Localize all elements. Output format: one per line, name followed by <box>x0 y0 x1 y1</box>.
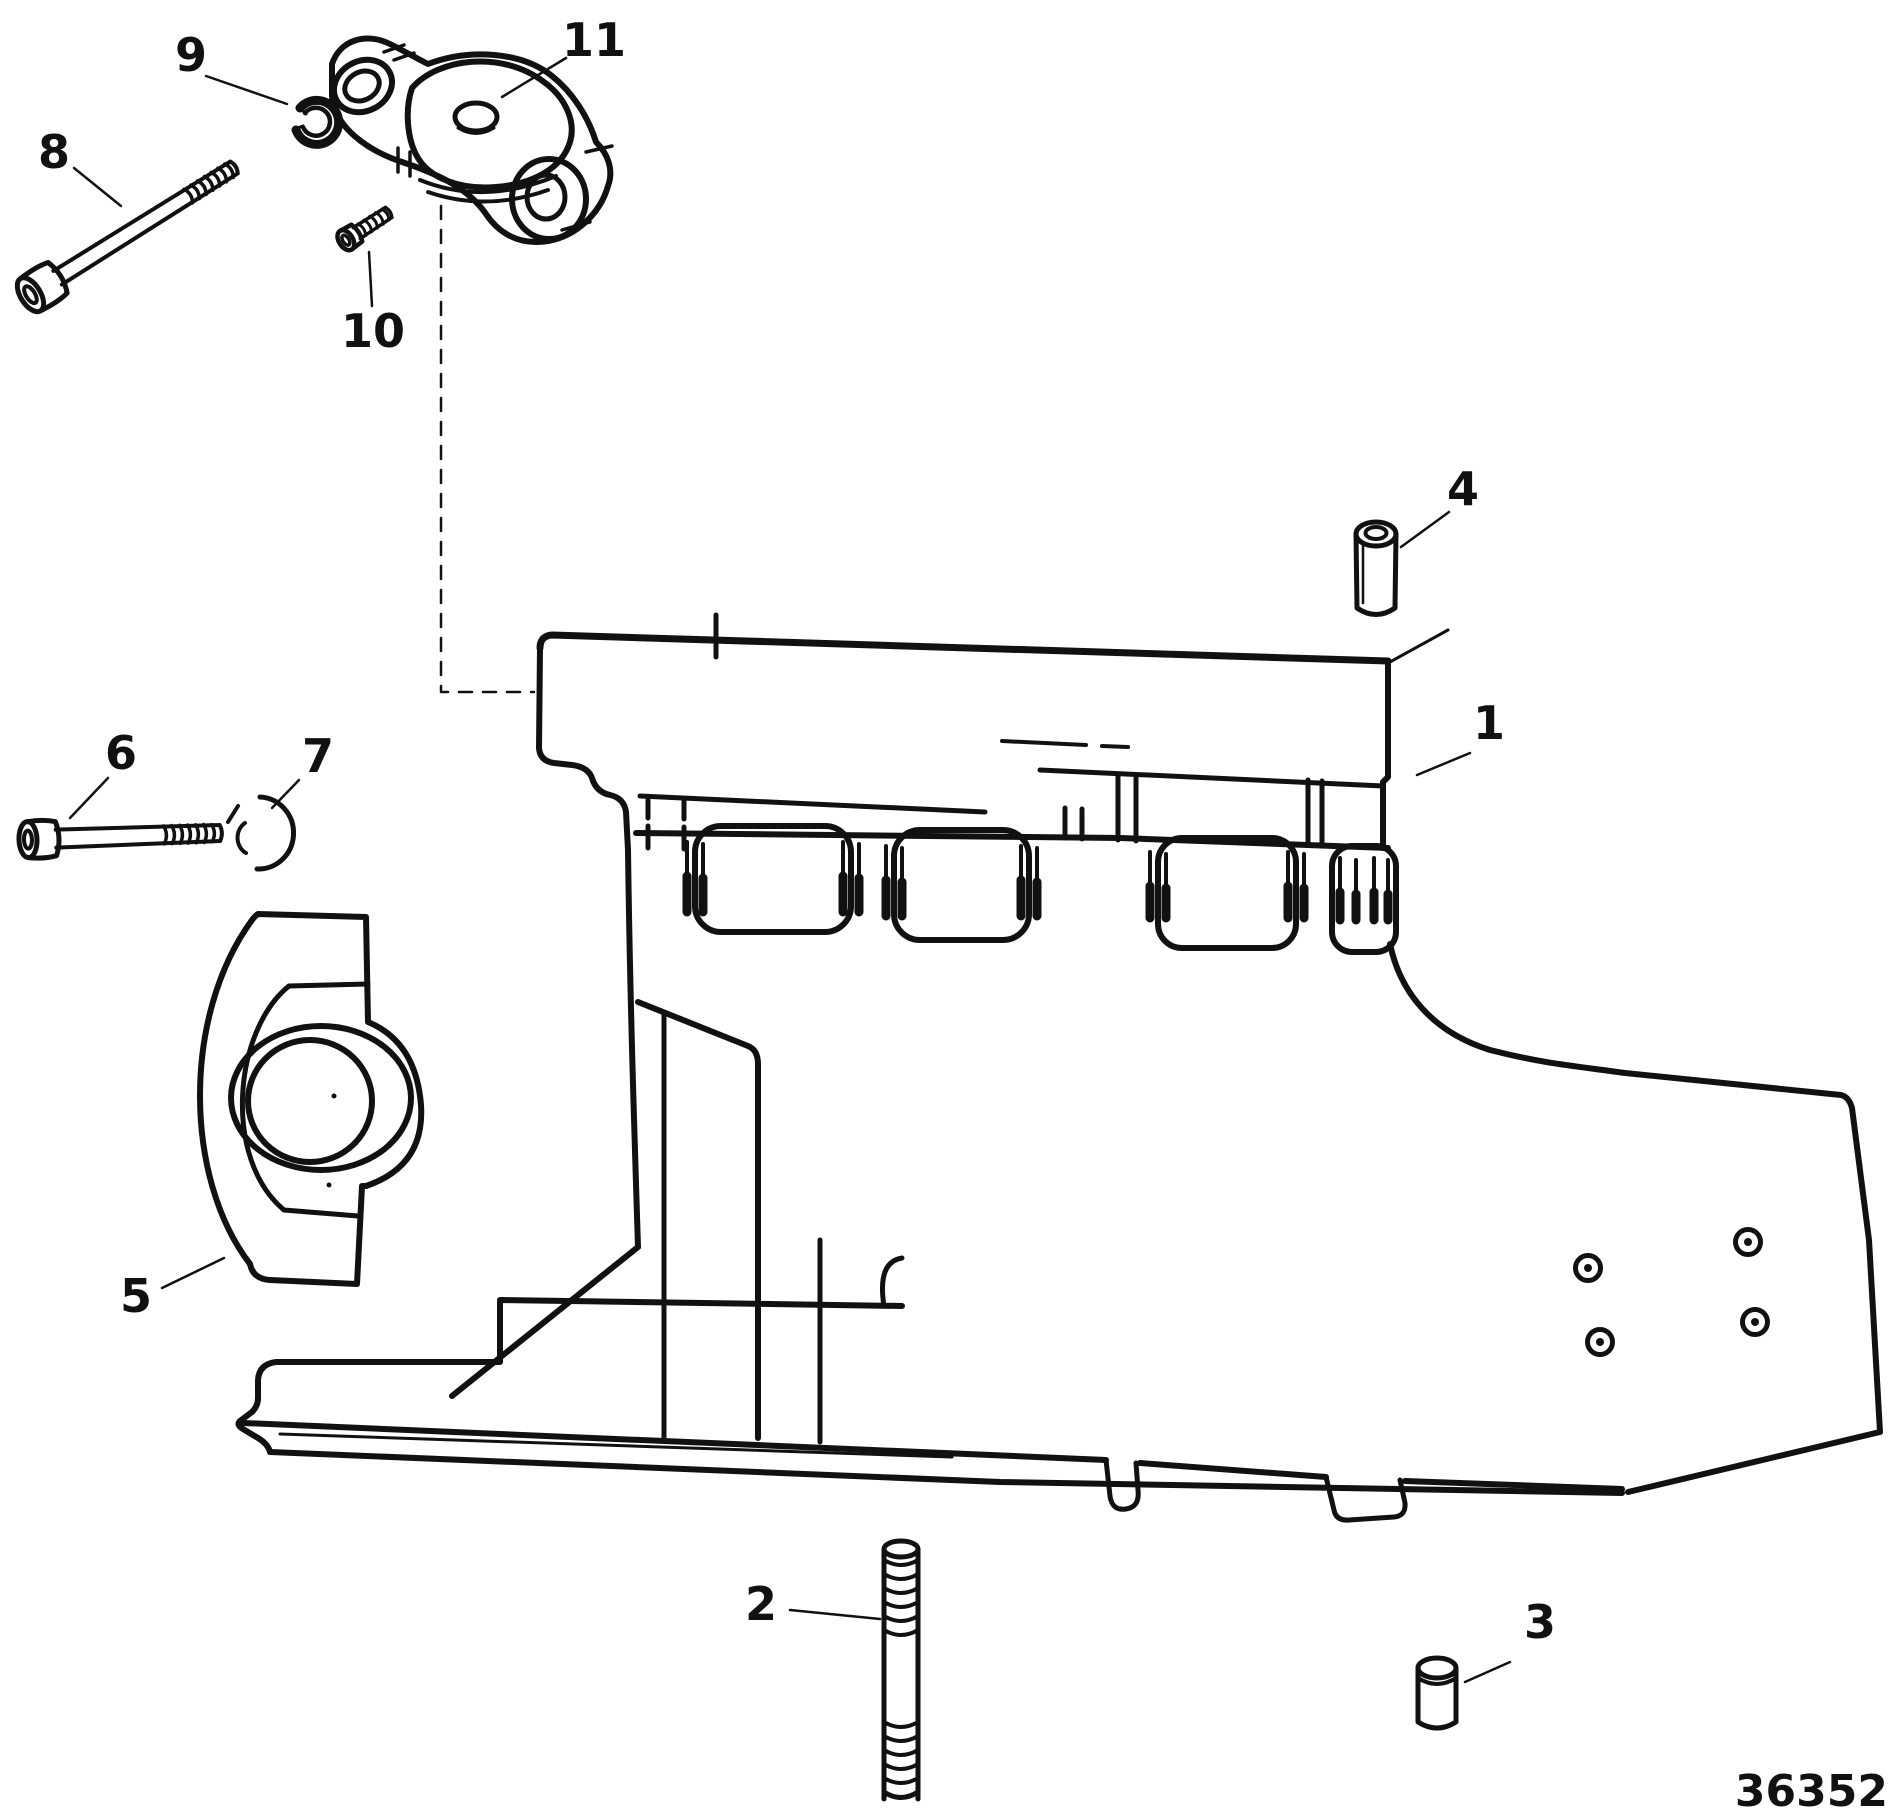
clip-slash <box>228 806 238 822</box>
leader-9 <box>206 76 287 104</box>
stud-lower-threads <box>884 1722 918 1783</box>
dowel-top-face <box>1418 1658 1456 1678</box>
part-11-bracket <box>325 38 612 242</box>
washer-inner-edge <box>303 108 330 136</box>
leader-dashed-bracket <box>441 206 534 692</box>
leader-7 <box>272 780 299 808</box>
callout-6: 6 <box>105 726 137 780</box>
housing-diagonal-brace <box>452 1247 638 1396</box>
leader-6 <box>70 778 108 818</box>
part-10-screw <box>334 202 396 253</box>
housing-band-right-edge <box>1383 661 1388 848</box>
housing-left-edge <box>539 648 638 1247</box>
sleeve-bore <box>1366 527 1387 539</box>
leader-4 <box>1401 512 1449 547</box>
callout-1: 1 <box>1473 696 1505 750</box>
callout-9: 9 <box>175 28 207 82</box>
retainer-inner-top <box>289 984 368 986</box>
bolt6-head-face <box>18 821 37 858</box>
stud-top-face <box>884 1541 918 1557</box>
leader-1 <box>1417 753 1470 775</box>
housing-hook-arc <box>882 1258 902 1306</box>
callout-4: 4 <box>1447 462 1479 516</box>
callout-10: 10 <box>341 304 405 358</box>
part-2-stud <box>884 1541 918 1799</box>
stud-sides <box>884 1549 918 1799</box>
housing-hidden-line <box>1002 741 1128 747</box>
housing-bolt-holes <box>1576 1230 1768 1355</box>
housing-leg-right <box>638 1002 758 1438</box>
housing-corner-detail <box>1390 630 1448 662</box>
clip-outer-arc <box>257 797 294 869</box>
parts-diagram: 1 2 3 4 5 6 7 8 9 10 11 36352 <box>0 0 1891 1811</box>
housing-lip-line <box>1040 770 1383 786</box>
leader-3 <box>1465 1662 1510 1682</box>
leader-8 <box>74 168 121 206</box>
port-hooks-thick <box>687 876 1388 920</box>
part-4-sleeve <box>1356 522 1396 615</box>
callout-labels: 1 2 3 4 5 6 7 8 9 10 11 <box>38 13 1556 1649</box>
leader-5 <box>162 1258 224 1288</box>
callout-2: 2 <box>745 1577 777 1631</box>
part-1-housing <box>239 615 1880 1520</box>
retainer-lower-dot <box>327 1183 332 1188</box>
retainer-outer-ring <box>231 1026 411 1170</box>
part-3-dowel <box>1418 1658 1456 1729</box>
part-5-retainer <box>200 914 421 1284</box>
flange-left-beak <box>239 1412 270 1452</box>
exhaust-port-2 <box>894 830 1029 940</box>
figure-number: 36352 <box>1735 1766 1888 1811</box>
stud-upper-threads <box>884 1560 918 1635</box>
clip-inner-arc <box>238 823 246 853</box>
housing-top-edge <box>540 635 1388 661</box>
housing-ledge-line <box>640 796 985 812</box>
housing-step-profile <box>252 1300 902 1412</box>
bracket-left-hole <box>340 65 385 107</box>
stud-bottom <box>884 1792 918 1798</box>
housing-right-outline <box>1390 944 1880 1492</box>
leader-10 <box>369 252 372 306</box>
leader-2 <box>790 1610 880 1619</box>
callout-7: 7 <box>302 729 334 783</box>
retainer-inner-bottom <box>284 1210 358 1216</box>
part-7-retainer-clip <box>228 797 294 869</box>
parts-diagram-page: 1 2 3 4 5 6 7 8 9 10 11 36352 <box>0 0 1891 1811</box>
retainer-inner-ring <box>248 1040 372 1162</box>
bracket-plate <box>408 61 572 187</box>
bolt8-threads <box>184 163 235 203</box>
bolt8-shaft <box>53 160 240 285</box>
callout-11: 11 <box>562 13 626 67</box>
callout-3: 3 <box>1524 1595 1556 1649</box>
exhaust-port-1 <box>695 826 851 932</box>
part-6-bolt <box>18 814 222 859</box>
exhaust-port-3 <box>1158 838 1296 948</box>
retainer-center-dot <box>332 1094 337 1099</box>
callout-5: 5 <box>120 1269 152 1323</box>
flange-notch-b <box>1326 1477 1405 1520</box>
bracket-plate-hole <box>455 103 497 131</box>
callout-8: 8 <box>38 125 70 179</box>
bolt6-socket <box>24 831 33 849</box>
